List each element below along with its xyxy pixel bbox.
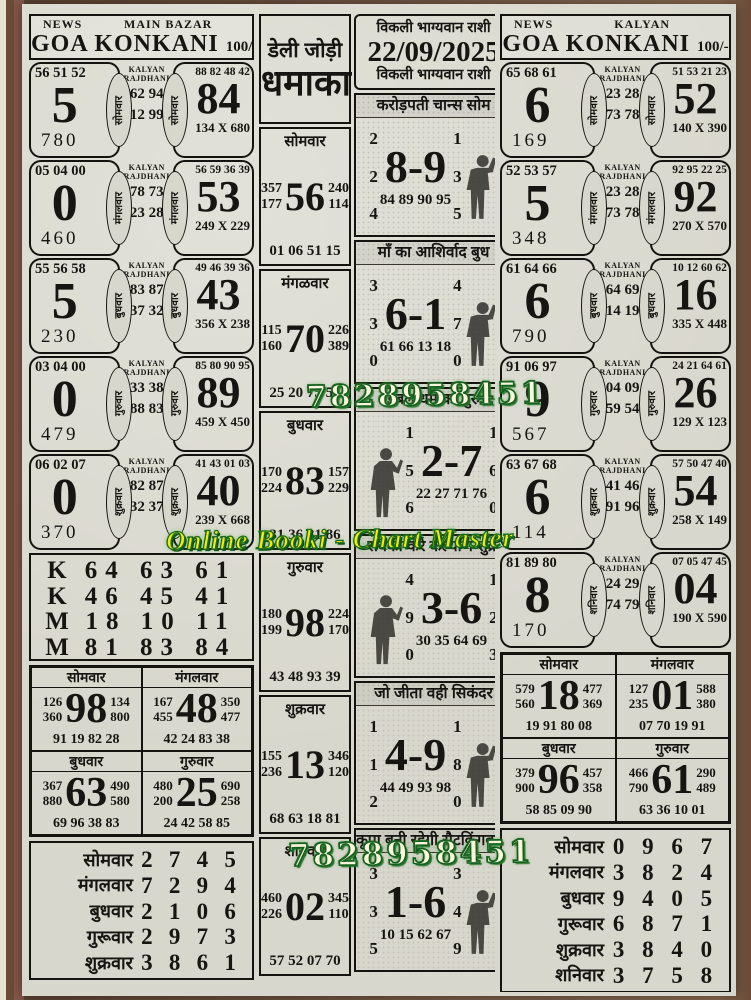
chart-title: GOA KONKANI: [31, 31, 219, 57]
km-block: K 64 63 61 K 46 45 41 M 18 10 11 M 81 83…: [29, 553, 254, 661]
prediction-main-pair: 8-9: [380, 144, 451, 190]
left-digit-column: 112: [369, 708, 378, 821]
left-panna-pair: 480200: [153, 779, 173, 809]
digit: 2: [369, 792, 378, 812]
daily-jodi-panel: सोमवार 357177 56 240114 01 06 51 15: [259, 127, 351, 266]
digit-cell: 5: [663, 963, 692, 989]
weekday-label: गुरूवार: [506, 913, 604, 936]
left-digit-column: 224: [369, 120, 378, 233]
digit-cell: 1: [692, 911, 721, 937]
right-weekday-table: सोमवार 0 9 6 7 मंगलवार 3 8 2 4 बुधवार 9 …: [500, 828, 731, 992]
prediction-title: करोड़पती चान्स सोम: [356, 95, 495, 118]
prediction-body: 490 3-6 30 35 64 69 123: [356, 559, 495, 676]
panel-bottom-numbers: 43 48 93 39: [262, 669, 348, 688]
panel-bottom-numbers: 19 91 80 08: [503, 719, 615, 737]
kalyan-rajdhani-label: KALYAN RAJDHANI: [122, 163, 171, 181]
open-bottom-number: 479: [35, 424, 114, 446]
digit-cell: 7: [633, 963, 662, 989]
jodi-result-box: सोमवार 51 53 21 23 52 140 X 390: [650, 62, 731, 158]
panel-big-number: 18: [538, 678, 580, 716]
day-label: शुक्रवार: [112, 488, 126, 516]
weekday-digit-row: गुरूवार 2 9 7 3: [35, 924, 244, 950]
jodi-big-number: 52: [664, 78, 727, 120]
day-oval: बुधवार: [639, 269, 665, 343]
panel-big-number: 63: [65, 775, 107, 813]
right-panna-pair: 477369: [583, 682, 603, 712]
result-row: 65 68 61 6 169 सोमवार KALYAN RAJDHANI 23…: [500, 62, 731, 158]
day-label: मंगलवार: [112, 192, 126, 224]
day-label: मंगलवार: [587, 192, 601, 224]
digit-cell: 0: [692, 937, 721, 963]
panna-value: 114: [328, 197, 348, 212]
digit: 1: [489, 570, 495, 590]
prediction-main-pair: 2-7: [416, 438, 487, 484]
left-day-panels: सोमवार 126360 98 134800 91 19 82 28 मंगल…: [29, 665, 254, 837]
daily-jodi-panel: गुरुवार 180199 98 224170 43 48 93 39: [259, 553, 351, 692]
panel-big-number: 61: [651, 762, 693, 800]
result-row: 52 53 57 5 348 मंगलवार KALYAN RAJDHANI 2…: [500, 160, 731, 256]
right-panna-pair: 350477: [221, 695, 241, 725]
cartoon-figure-icon: [464, 267, 495, 380]
day-result-panel: मंगलवार 167455 48 350477 42 24 83 38: [142, 667, 253, 751]
open-result-box: 65 68 61 6 169 सोमवार: [500, 62, 595, 158]
panna-value: 115: [261, 323, 281, 338]
weekday-digit-row: शुक्रवार 3 8 4 0: [506, 937, 721, 963]
digit-cell: 2: [133, 924, 161, 950]
result-row: 61 64 66 6 790 बुधवार KALYAN RAJDHANI 64…: [500, 258, 731, 354]
digit: 4: [405, 570, 414, 590]
jodi-bottom-panna: 129 X 123: [664, 414, 727, 430]
digit: 6: [489, 461, 495, 481]
left-panna-pair: 155236: [261, 749, 282, 781]
result-row: 03 04 00 0 479 गुरुवार KALYAN RAJDHANI 3…: [29, 356, 254, 452]
weekday-digit-row: बुधवार 2 1 0 6: [35, 899, 244, 925]
kalyan-rajdhani-label: KALYAN RAJDHANI: [597, 555, 648, 573]
weekday-label: शनिवार: [506, 964, 604, 987]
open-bottom-number: 780: [35, 130, 114, 152]
left-panna-pair: 170224: [261, 465, 282, 497]
panel-body: 167455 48 350477: [143, 688, 252, 732]
kalyan-header: NEWS KALYAN GOA KONKANI 100/-: [500, 14, 731, 60]
prediction-box: सबका करे कल्याण शुक्र 490 3-6 30 35 64 6…: [354, 534, 495, 678]
panna-value: 155: [261, 749, 282, 764]
section-main-bazar: NEWS MAIN BAZAR GOA KONKANI 100/- 56 51 …: [29, 14, 254, 992]
digit-cell: 1: [216, 950, 244, 976]
cartoon-figure-icon: [464, 120, 495, 233]
weekly-lucky-top: विकली भाग्यवान राशी: [356, 21, 495, 37]
panel-bottom-numbers: 01 06 51 15: [262, 243, 348, 262]
panna-value: 110: [328, 907, 348, 922]
open-big-digit: 8: [506, 572, 589, 620]
jodi-bottom-panna: 134 X 680: [187, 120, 250, 136]
open-big-digit: 0: [35, 180, 114, 228]
digit-cell: 6: [216, 899, 244, 925]
km-numbers: 18 10 11: [79, 609, 242, 635]
jodi-bottom-panna: 270 X 570: [664, 218, 727, 234]
panna-value: 560: [515, 696, 535, 711]
right-panna-pair: 290489: [696, 766, 716, 796]
panel-big-number: 02: [285, 889, 325, 925]
open-big-digit: 5: [35, 278, 114, 326]
jodi-big-number: 54: [664, 470, 727, 512]
digit-cell: 8: [161, 950, 189, 976]
panel-bottom-numbers: 91 19 82 28: [32, 732, 141, 750]
day-label: गुरुवार: [587, 391, 601, 416]
day-oval: शुक्रवार: [581, 465, 607, 539]
weekday-digit-row: शनिवार 3 7 5 8: [506, 963, 721, 989]
left-panna-pair: 126360: [43, 695, 63, 725]
day-result-panel: गुरुवार 480200 25 690258 24 42 58 85: [142, 751, 253, 835]
open-result-box: 81 89 80 8 170 शनिवार: [500, 552, 595, 648]
digit-cell: 3: [216, 924, 244, 950]
km-numbers: 46 45 41: [79, 584, 242, 610]
daily-jodi-header: डेली जोड़ी धमाका: [259, 14, 351, 124]
open-result-box: 63 67 68 6 114 शुक्रवार: [500, 454, 595, 550]
daily-jodi-line1: डेली जोड़ी: [261, 36, 349, 64]
day-oval: गुरुवार: [106, 367, 132, 441]
panna-value: 346: [328, 749, 349, 764]
left-digit-column: 156: [405, 414, 414, 527]
digit-cell: 0: [604, 834, 633, 860]
brand-watermark: Online Booki - Chart Master: [166, 522, 514, 556]
weekly-lucky-bottom: विकली भाग्यवान राशी: [356, 68, 495, 84]
prediction-main-pair: 3-6: [416, 585, 487, 631]
panel-day-label: सोमवार: [32, 668, 141, 688]
prediction-center: 6-1 61 66 13 18: [380, 267, 451, 380]
day-oval: बुधवार: [581, 269, 607, 343]
left-result-rows: 56 51 52 5 780 सोमवार KALYAN RAJDHANI 62…: [29, 62, 254, 550]
panna-value: 466: [629, 765, 649, 780]
result-row: 81 89 80 8 170 शनिवार KALYAN RAJDHANI 24…: [500, 552, 731, 648]
news-label: NEWS: [514, 17, 553, 32]
digit-cell: 8: [633, 860, 662, 886]
prediction-box: करोड़पती चान्स सोम 224 8-9 84 89 90 95 1…: [354, 93, 495, 237]
digit-cell: 4: [633, 886, 662, 912]
digit: 5: [405, 461, 414, 481]
digit: 2: [369, 129, 378, 149]
jodi-bottom-panna: 190 X 590: [664, 610, 727, 626]
panna-value: 380: [696, 696, 716, 711]
prediction-main-pair: 1-6: [380, 879, 451, 925]
digit: 0: [405, 645, 414, 665]
right-panna-pair: 226389: [328, 323, 349, 355]
weekday-digit-row: मंगलवार 7 2 9 4: [35, 873, 244, 899]
panel-body: 379900 96 457358: [503, 759, 615, 803]
day-oval: मंगलवार: [106, 171, 132, 245]
km-letter: K: [35, 584, 79, 610]
prediction-jodis: 84 89 90 95: [380, 192, 451, 209]
jodi-big-number: 04: [664, 568, 727, 610]
digit: 0: [369, 351, 378, 371]
panel-bottom-numbers: 57 52 07 70: [262, 953, 348, 972]
digit-cell: 0: [663, 886, 692, 912]
digit-cell: 3: [604, 860, 633, 886]
panna-value: 389: [328, 339, 349, 354]
day-label: सोमवार: [645, 96, 659, 125]
day-oval: बुधवार: [162, 269, 188, 343]
weekday-label: गुरूवार: [35, 926, 133, 949]
digit-cell: 4: [692, 860, 721, 886]
day-oval: सोमवार: [581, 73, 607, 147]
open-bottom-number: 348: [506, 228, 589, 250]
panna-value: 457: [583, 765, 603, 780]
jodi-result-box: बुधवार 10 12 60 62 16 335 X 448: [650, 258, 731, 354]
panel-big-number: 98: [285, 605, 325, 641]
weekday-label: सोमवार: [35, 849, 133, 872]
panna-value: 580: [110, 793, 130, 808]
jodi-big-number: 16: [664, 274, 727, 316]
right-digit-column: 470: [453, 267, 462, 380]
daily-jodi-panel: शुक्रवार 155236 13 346120 68 63 18 81: [259, 695, 351, 834]
panna-value: 477: [221, 709, 241, 724]
news-label: NEWS: [43, 17, 82, 32]
day-oval: सोमवार: [162, 73, 188, 147]
day-label: गुरुवार: [112, 391, 126, 416]
digit: 9: [405, 608, 414, 628]
left-panna-pair: 379900: [515, 766, 535, 796]
day-oval: शुक्रवार: [639, 465, 665, 539]
panna-value: 489: [696, 780, 716, 795]
cartoon-figure-icon: [369, 561, 403, 674]
day-label: बुधवार: [168, 293, 182, 318]
open-bottom-number: 169: [506, 130, 589, 152]
chart-title: GOA KONKANI: [502, 31, 690, 57]
right-digit-column: 160: [489, 414, 495, 527]
digit: 1: [453, 717, 462, 737]
digit-cell: 2: [133, 899, 161, 925]
km-letter: M: [35, 635, 79, 661]
digit: 1: [369, 717, 378, 737]
price-label: 100/-: [226, 39, 254, 55]
digit-cell: 2: [663, 860, 692, 886]
digit: 0: [489, 498, 495, 518]
panel-body: 367880 63 490580: [32, 772, 141, 816]
phone-watermark: 7828958451: [306, 376, 545, 415]
digit-cell: 7: [663, 911, 692, 937]
section-kalyan: NEWS KALYAN GOA KONKANI 100/- 65 68 61 6…: [500, 14, 731, 992]
kalyan-rajdhani-label: KALYAN RAJDHANI: [122, 457, 171, 475]
right-digit-column: 123: [489, 561, 495, 674]
weekday-label: बुधवार: [506, 887, 604, 910]
open-result-box: 56 51 52 5 780 सोमवार: [29, 62, 120, 158]
digit: 4: [369, 204, 378, 224]
kalyan-rajdhani-label: KALYAN RAJDHANI: [122, 65, 171, 83]
day-label: शुक्रवार: [587, 488, 601, 516]
open-big-digit: 0: [35, 474, 114, 522]
panna-value: 367: [43, 778, 63, 793]
weekday-label: बुधवार: [35, 900, 133, 923]
panel-body: 460226 02 345110: [262, 861, 348, 953]
right-panna-pair: 346120: [328, 749, 349, 781]
prediction-title: जो जीता वही सिकंदर: [356, 683, 495, 706]
weekday-digit-row: गुरूवार 6 8 7 1: [506, 911, 721, 937]
panel-body: 357177 56 240114: [262, 151, 348, 243]
km-line: M 18 10 11: [35, 609, 242, 635]
digit-cell: 2: [133, 847, 161, 873]
digit-cell: 6: [604, 911, 633, 937]
jodi-result-box: मंगलवार 56 59 36 39 53 249 X 229: [173, 160, 254, 256]
day-oval: शनिवार: [581, 563, 607, 637]
open-result-box: 03 04 00 0 479 गुरुवार: [29, 356, 120, 452]
day-oval: सोमवार: [106, 73, 132, 147]
day-label: बुधवार: [587, 293, 601, 318]
panna-value: 177: [261, 197, 282, 212]
prediction-body: 330 6-1 61 66 13 18 470: [356, 265, 495, 382]
open-big-digit: 5: [35, 82, 114, 130]
day-oval: मंगलवार: [581, 171, 607, 245]
open-big-digit: 6: [506, 474, 589, 522]
panna-value: 290: [696, 765, 716, 780]
right-panna-pair: 224170: [328, 607, 349, 639]
right-panna-pair: 690258: [221, 779, 241, 809]
day-label: सोमवार: [587, 96, 601, 125]
left-panna-pair: 460226: [261, 891, 282, 923]
day-label: शनिवार: [645, 586, 659, 615]
panel-day-label: गुरुवार: [617, 739, 729, 759]
panel-body: 127235 01 588380: [617, 675, 729, 719]
open-result-box: 05 04 00 0 460 मंगलवार: [29, 160, 120, 256]
digit-cell: 7: [692, 834, 721, 860]
right-result-rows: 65 68 61 6 169 सोमवार KALYAN RAJDHANI 23…: [500, 62, 731, 648]
date-box: विकली भाग्यवान राशी 22/09/2025 विकली भाग…: [354, 14, 495, 90]
market-label: KALYAN: [602, 17, 670, 32]
weekday-label: मंगलवार: [35, 874, 133, 897]
day-oval: बुधवार: [106, 269, 132, 343]
digit-cell: 6: [189, 950, 217, 976]
digit: 1: [489, 423, 495, 443]
panel-day-label: गुरुवार: [262, 557, 348, 577]
panel-bottom-numbers: 68 63 18 81: [262, 811, 348, 830]
right-digit-column: 180: [453, 708, 462, 821]
panel-body: 180199 98 224170: [262, 577, 348, 669]
panna-value: 258: [221, 793, 241, 808]
panna-value: 379: [515, 765, 535, 780]
panel-big-number: 25: [176, 775, 218, 813]
open-bottom-number: 230: [35, 326, 114, 348]
panna-value: 358: [583, 780, 603, 795]
day-label: शनिवार: [587, 586, 601, 615]
panna-value: 200: [153, 793, 173, 808]
jodi-result-box: सोमवार 88 82 48 42 84 134 X 680: [173, 62, 254, 158]
panna-value: 588: [696, 681, 716, 696]
jodi-bottom-panna: 140 X 390: [664, 120, 727, 136]
day-result-panel: गुरुवार 466790 61 290489 63 36 10 01: [616, 738, 730, 822]
prediction-jodis: 30 35 64 69: [416, 633, 487, 650]
digit: 0: [453, 792, 462, 812]
digit: 7: [453, 314, 462, 334]
panna-value: 199: [261, 623, 282, 638]
day-label: मंगलवार: [168, 192, 182, 224]
result-row: 55 56 58 5 230 बुधवार KALYAN RAJDHANI 83…: [29, 258, 254, 354]
day-label: गुरुवार: [168, 391, 182, 416]
day-label: शुक्रवार: [168, 488, 182, 516]
panel-day-label: मंगलवार: [143, 668, 252, 688]
panna-value: 180: [261, 607, 282, 622]
open-result-box: 52 53 57 5 348 मंगलवार: [500, 160, 595, 256]
result-row: 05 04 00 0 460 मंगलवार KALYAN RAJDHANI 7…: [29, 160, 254, 256]
digit-cell: 9: [189, 873, 217, 899]
jodi-bottom-panna: 356 X 238: [187, 316, 250, 332]
day-result-panel: मंगलवार 127235 01 588380 07 70 19 91: [616, 654, 730, 738]
digit: 9: [453, 939, 462, 959]
digit: 6: [405, 498, 414, 518]
digit: 1: [405, 423, 414, 443]
right-panna-pair: 157229: [328, 465, 349, 497]
panna-value: 690: [221, 778, 241, 793]
panel-body: 155236 13 346120: [262, 719, 348, 811]
panna-value: 224: [261, 481, 282, 496]
panel-day-label: मंगलवार: [617, 655, 729, 675]
digit-cell: 7: [189, 924, 217, 950]
digit-cell: 5: [216, 847, 244, 873]
weekday-label: शुक्रवार: [506, 939, 604, 962]
day-label: सोमवार: [168, 96, 182, 125]
prediction-box: जो जीता वही सिकंदर 112 4-9 44 49 93 98 1…: [354, 681, 495, 825]
open-big-digit: 5: [506, 180, 589, 228]
panna-value: 170: [261, 465, 282, 480]
panel-bottom-numbers: 63 36 10 01: [617, 803, 729, 821]
panna-value: 880: [43, 793, 63, 808]
open-big-digit: 6: [506, 278, 589, 326]
panna-value: 235: [629, 696, 649, 711]
open-result-box: 55 56 58 5 230 बुधवार: [29, 258, 120, 354]
jodi-bottom-panna: 258 X 149: [664, 512, 727, 528]
panna-value: 800: [110, 709, 130, 724]
panna-value: 167: [153, 694, 173, 709]
jodi-result-box: शनिवार 07 05 47 45 04 190 X 590: [650, 552, 731, 648]
digit-cell: 2: [161, 873, 189, 899]
prediction-main-pair: 6-1: [380, 291, 451, 337]
panna-value: 226: [261, 907, 282, 922]
panel-big-number: 13: [285, 747, 325, 783]
panna-value: 120: [328, 765, 349, 780]
panel-big-number: 70: [285, 321, 325, 357]
right-digit-column: 349: [453, 855, 462, 968]
jodi-big-number: 53: [187, 176, 250, 218]
panel-day-label: शुक्रवार: [262, 699, 348, 719]
day-label: गुरुवार: [645, 391, 659, 416]
digit-cell: 8: [692, 963, 721, 989]
panna-value: 170: [328, 623, 349, 638]
km-line: K 64 63 61: [35, 558, 242, 584]
digit: 8: [453, 755, 462, 775]
digit-cell: 7: [133, 873, 161, 899]
km-numbers: 64 63 61: [79, 558, 242, 584]
result-row: 63 67 68 6 114 शुक्रवार KALYAN RAJDHANI …: [500, 454, 731, 550]
chart-photo: { "page": { "watermarks": { "phone": "78…: [0, 0, 751, 1000]
panna-value: 350: [221, 694, 241, 709]
jodi-bottom-panna: 459 X 450: [187, 414, 250, 430]
weekday-digit-row: बुधवार 9 4 0 5: [506, 886, 721, 912]
market-label: MAIN BAZAR: [112, 17, 212, 32]
prediction-title: माँ का आशिर्वाद बुध: [356, 242, 495, 265]
panel-day-label: बुधवार: [32, 752, 141, 772]
open-bottom-number: 460: [35, 228, 114, 250]
panna-value: 224: [328, 607, 349, 622]
digit: 4: [453, 276, 462, 296]
panna-value: 229: [328, 481, 349, 496]
prediction-box: माँ का आशिर्वाद बुध 330 6-1 61 66 13 18 …: [354, 240, 495, 384]
jodi-result-box: गुरुवार 85 80 90 95 89 459 X 450: [173, 356, 254, 452]
digit: 3: [369, 314, 378, 334]
open-big-digit: 0: [35, 376, 114, 424]
right-panna-pair: 345110: [328, 891, 349, 923]
open-big-digit: 6: [506, 82, 589, 130]
kalyan-rajdhani-label: KALYAN RAJDHANI: [597, 261, 648, 279]
day-label: बुधवार: [112, 293, 126, 318]
day-oval: गुरुवार: [162, 367, 188, 441]
right-day-panels: सोमवार 579560 18 477369 19 91 80 08 मंगल…: [500, 652, 731, 824]
